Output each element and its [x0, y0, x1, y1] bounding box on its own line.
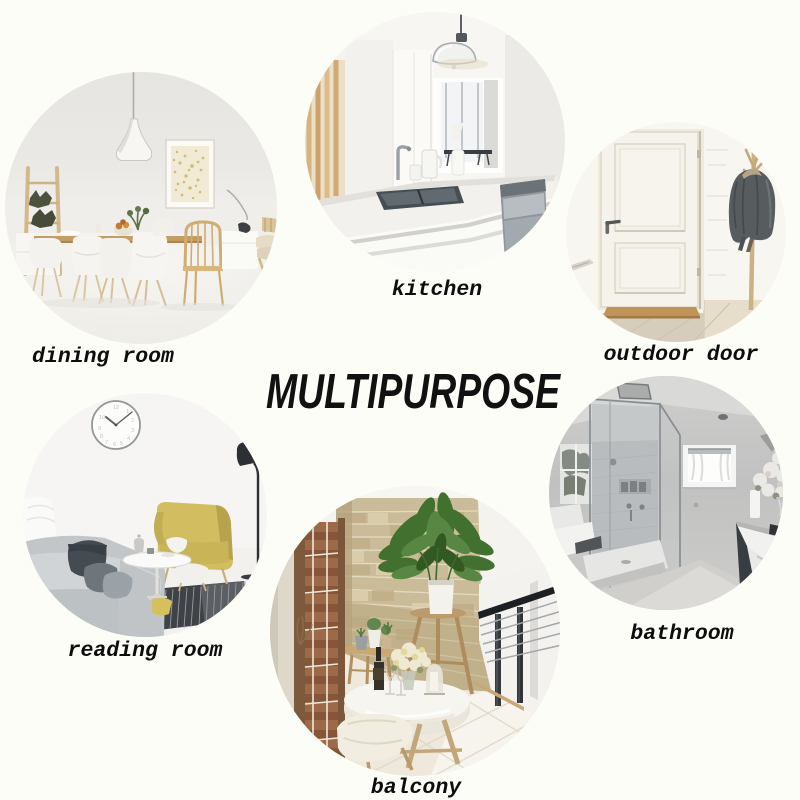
svg-text:8: 8 — [100, 434, 103, 440]
svg-text:2: 2 — [131, 418, 134, 424]
svg-text:balcony: balcony — [371, 776, 462, 800]
svg-text:3: 3 — [131, 428, 134, 434]
svg-text:reading room: reading room — [68, 639, 223, 663]
svg-text:kitchen: kitchen — [392, 278, 482, 302]
svg-text:dining room: dining room — [32, 345, 174, 369]
svg-text:MULTIPURPOSE: MULTIPURPOSE — [266, 364, 562, 419]
svg-text:10: 10 — [99, 415, 105, 421]
svg-text:outdoor door: outdoor door — [604, 343, 759, 367]
svg-text:12: 12 — [113, 405, 119, 411]
svg-text:9: 9 — [98, 426, 101, 432]
svg-text:6: 6 — [113, 442, 116, 448]
svg-text:bathroom: bathroom — [630, 622, 733, 646]
svg-text:5: 5 — [120, 441, 123, 447]
svg-text:4: 4 — [127, 436, 130, 442]
svg-text:7: 7 — [105, 440, 108, 446]
